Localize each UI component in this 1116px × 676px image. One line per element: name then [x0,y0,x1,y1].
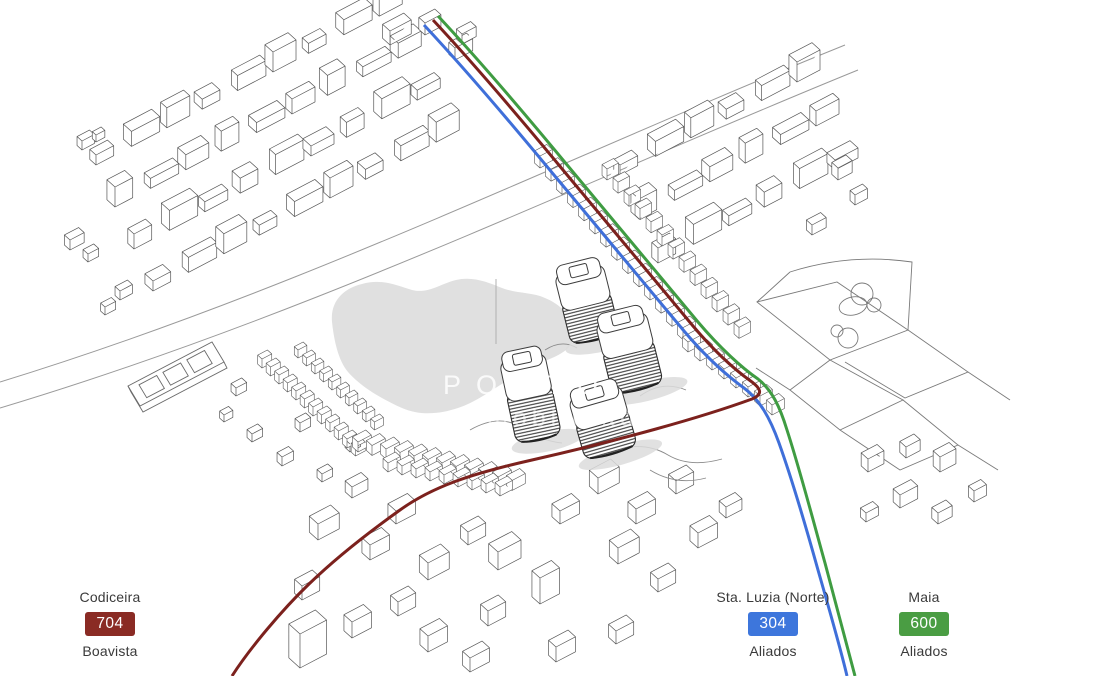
route-number-badge-704: 704 [85,612,134,636]
origin-stop-label: Codiceira [25,589,195,605]
legend-route-704: Codiceira 704 Boavista [25,589,195,666]
destination-stop-label: Aliados [688,643,858,659]
park-paths [756,259,1010,470]
destination-stop-label: Boavista [25,643,195,659]
legend-route-304: Sta. Luzia (Norte) 304 Aliados [688,589,858,666]
pond [837,294,868,317]
origin-stop-label: Maia [839,589,1009,605]
map-canvas: PORTO mobilidade Codiceira 704 Boavista … [0,0,1116,676]
destination-stop-label: Aliados [839,643,1009,659]
development-towers [492,250,690,476]
city-map-illustration: PORTO mobilidade [0,0,1116,676]
sports-courts [128,342,227,412]
legend-route-600: Maia 600 Aliados [839,589,1009,666]
route-number-badge-600: 600 [899,612,948,636]
route-number-badge-304: 304 [748,612,797,636]
origin-stop-label: Sta. Luzia (Norte) [688,589,858,605]
